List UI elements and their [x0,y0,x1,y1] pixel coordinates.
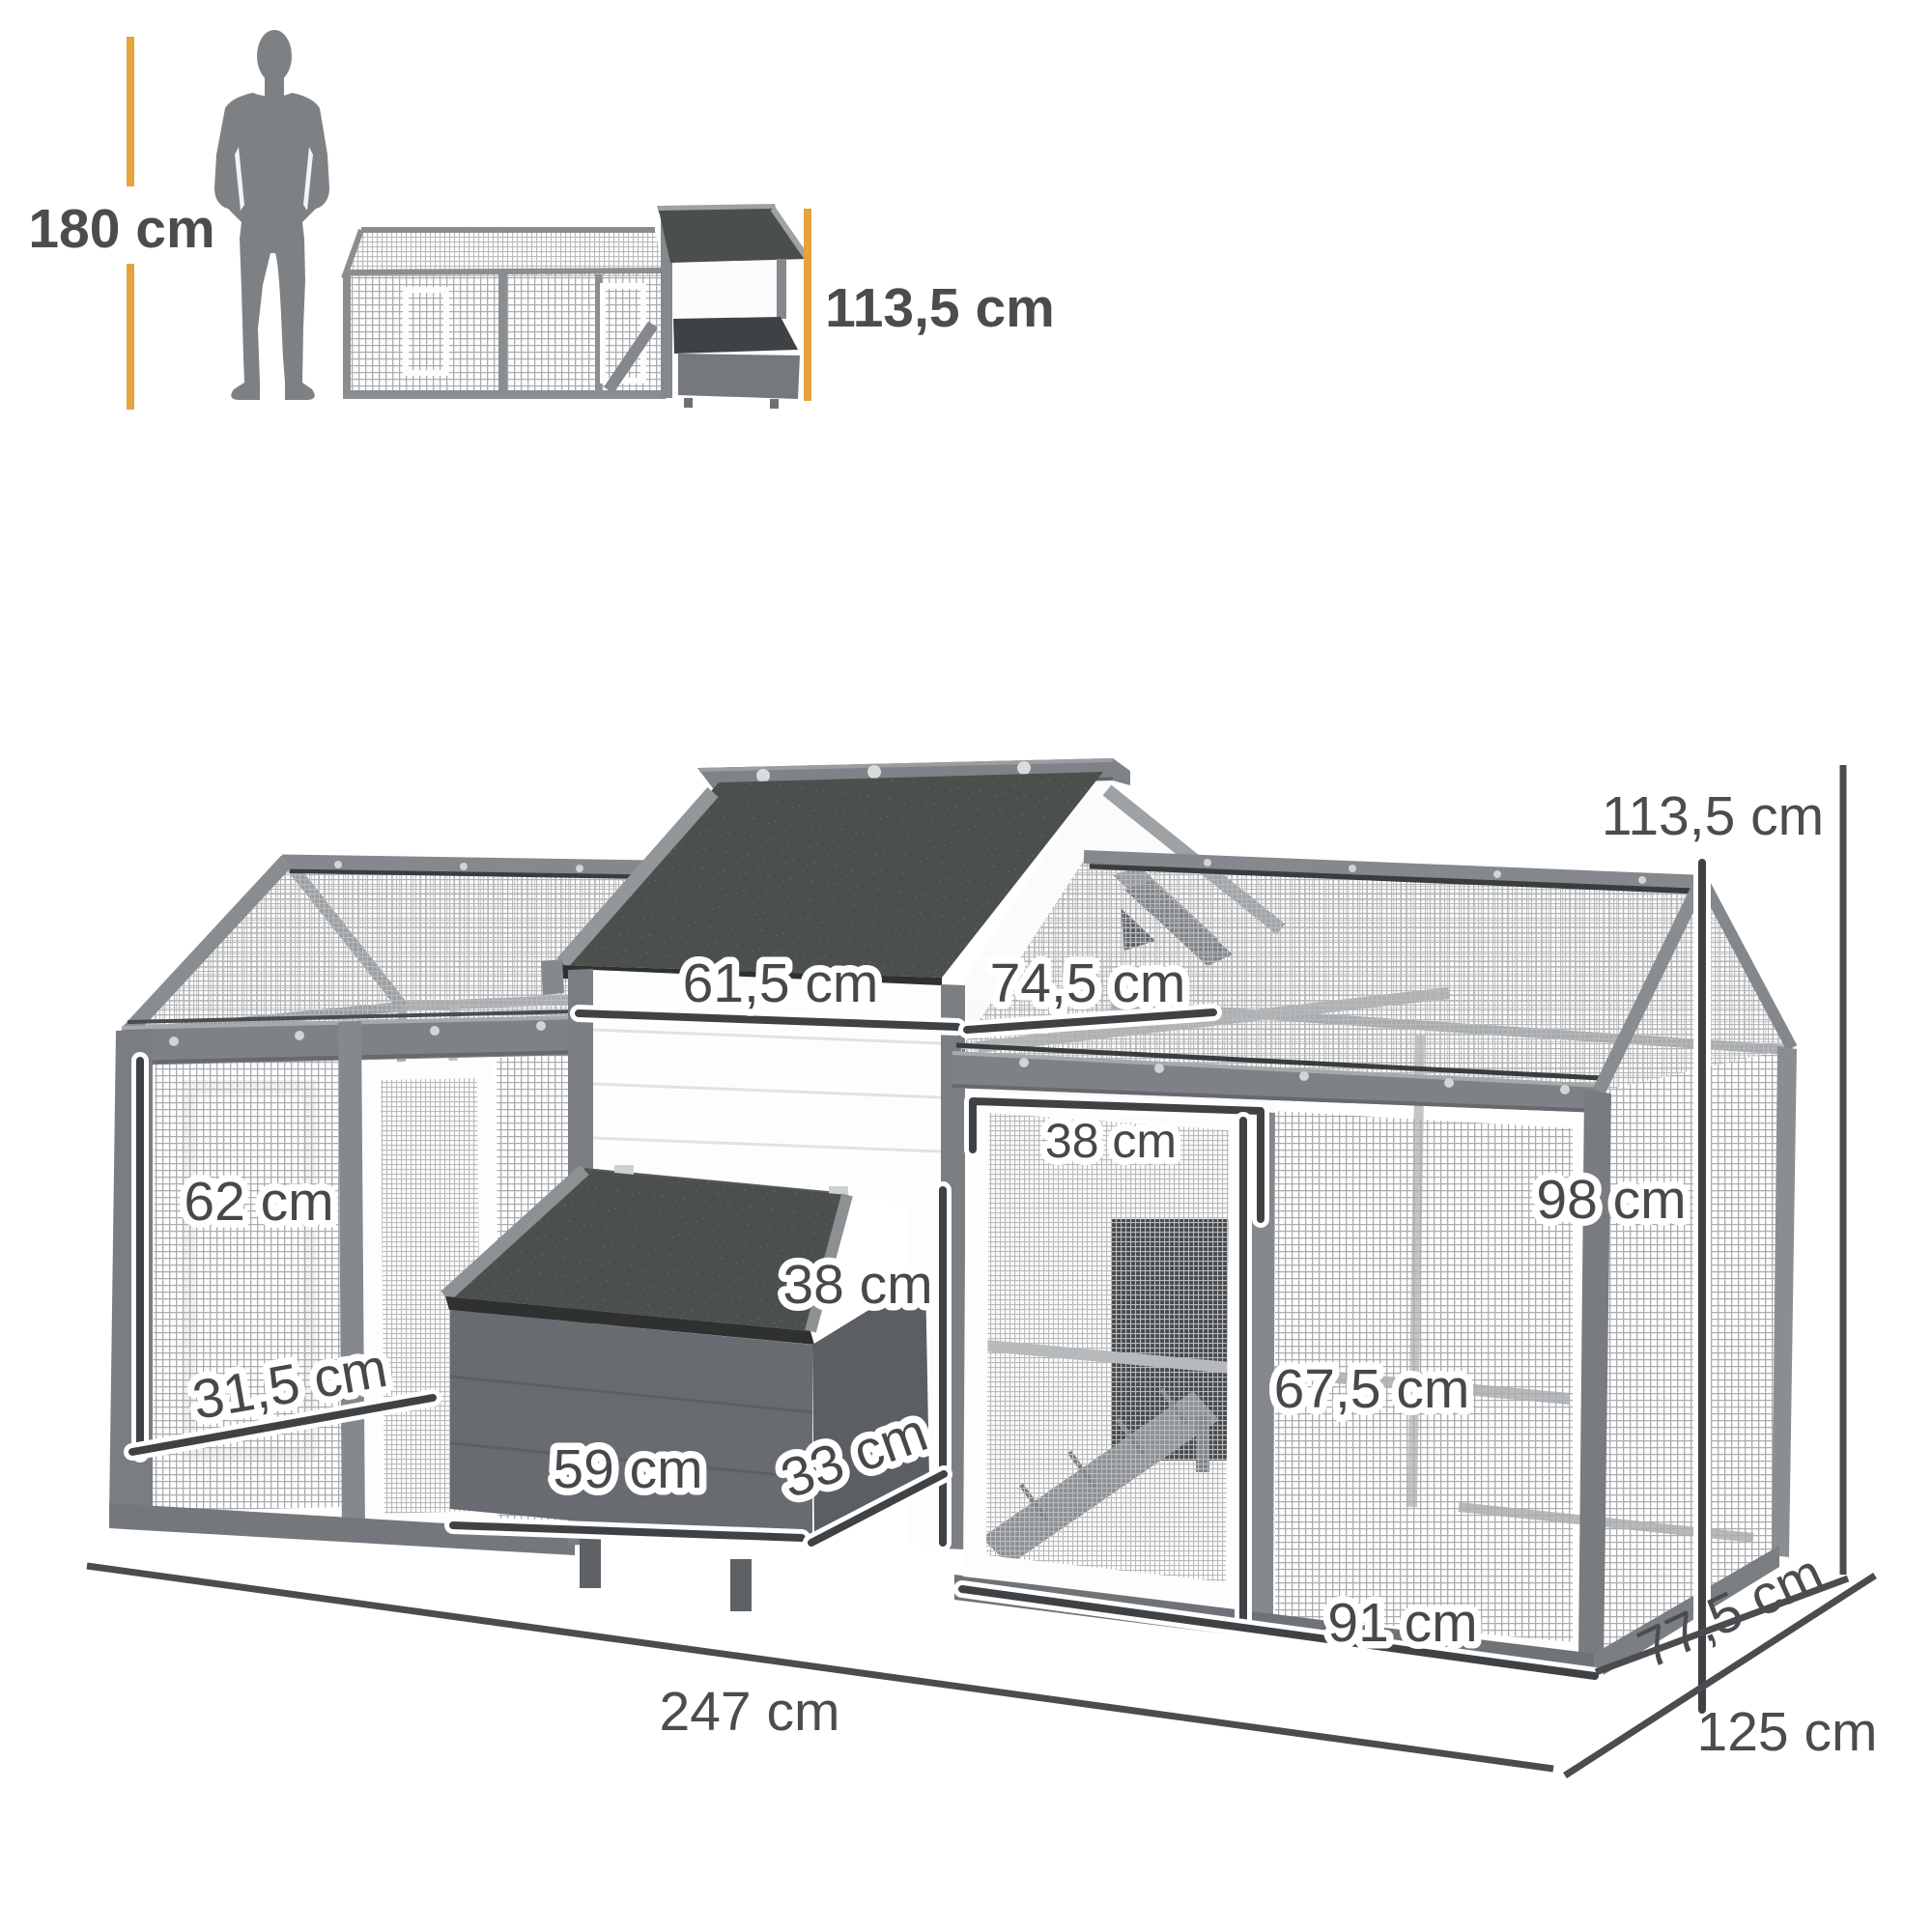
svg-text:67,5 cm: 67,5 cm [1274,1358,1470,1420]
svg-text:74,5 cm: 74,5 cm [990,952,1186,1014]
svg-text:38 cm: 38 cm [1045,1114,1177,1168]
svg-text:98 cm: 98 cm [1536,1169,1686,1231]
svg-text:180 cm: 180 cm [28,198,214,260]
svg-text:59 cm: 59 cm [553,1438,702,1500]
svg-text:38 cm: 38 cm [782,1254,932,1316]
svg-text:61,5 cm: 61,5 cm [683,952,879,1014]
svg-text:113,5 cm: 113,5 cm [825,277,1055,339]
svg-text:247 cm: 247 cm [660,1681,840,1743]
svg-text:62 cm: 62 cm [184,1171,333,1233]
svg-text:113,5 cm: 113,5 cm [1602,785,1824,847]
svg-text:125 cm: 125 cm [1697,1701,1878,1763]
svg-text:91 cm: 91 cm [1327,1592,1477,1654]
